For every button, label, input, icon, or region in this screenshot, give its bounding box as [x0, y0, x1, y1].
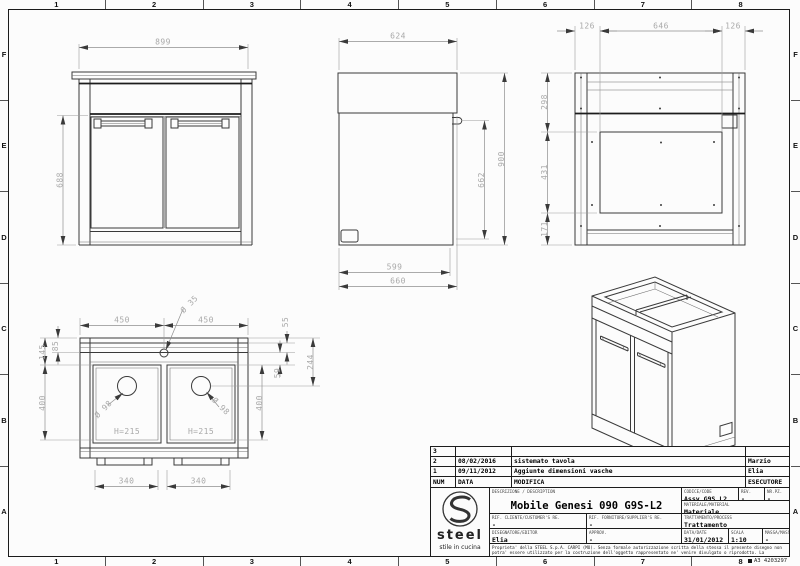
dim-plan-244: 244: [306, 354, 315, 370]
side-extension-lines: [339, 38, 508, 290]
code-cell: CODICE/CODE Assy G9S L2: [681, 487, 739, 501]
plan-feet: [97, 458, 229, 465]
dim-plan-55: 55: [281, 317, 290, 327]
approval-cell: APPROV. -: [586, 528, 682, 544]
date-cell: DATA/DATE 31/01/2012: [681, 528, 729, 544]
dim-plan-feet-right: 340: [191, 477, 207, 486]
rear-back-panel: [600, 132, 722, 213]
dim-rear-mid: 431: [540, 164, 549, 180]
rear-screw-dots: [580, 77, 740, 228]
brand-tagline: stile in cucina: [439, 544, 480, 551]
front-doors: [91, 117, 239, 228]
brand-name: steel: [437, 528, 483, 543]
qty-cell: NR.PZ. -: [764, 487, 790, 501]
dim-plan-right-depth: 400: [255, 395, 264, 411]
dim-rear-bottom: 171: [540, 221, 549, 237]
customer-ref-cell: RIF. CLIENTE/CUSTOMER'S RE. -: [489, 513, 587, 529]
dim-plan-feet-left: 340: [119, 477, 135, 486]
dim-side-top-depth: 624: [390, 32, 406, 41]
logo-cell: steel stile in cucina: [430, 487, 490, 557]
basin-left-depth-label: H=215: [114, 427, 140, 436]
dim-drain-left: Ø 98: [92, 398, 114, 420]
dim-front-width: 899: [155, 38, 171, 47]
process-cell: TRATTAMENTO/PROCESS Trattamento: [681, 513, 790, 529]
isometric-view: [592, 277, 735, 464]
rear-view: 126 646 126 298 431 171: [540, 22, 763, 246]
dim-side-inner-depth: 599: [387, 263, 403, 272]
dim-rear-right-offset: 126: [725, 22, 741, 31]
disclaimer-cell: Proprieta' della STEEL S.p.A. CARPI (MO)…: [489, 543, 790, 557]
description-cell: DESCRIZIONE / DESCRIPTION Mobile Genesi …: [489, 487, 682, 514]
rear-junction-box: [722, 115, 737, 128]
steel-logo: steel stile in cucina: [431, 488, 489, 551]
sheet-format-code: A3 4203297: [748, 558, 787, 564]
drain-left: [118, 377, 137, 396]
scale-cell: SCALA 1:10: [728, 528, 763, 544]
side-top-block: [338, 73, 457, 113]
side-view: 624 662 900 599 660: [338, 32, 508, 291]
dim-plan-right-width: 450: [198, 316, 214, 325]
copyright-disclaimer: Proprieta' della STEEL S.p.A. CARPI (MO)…: [490, 544, 789, 557]
drawing-sheet: 1 2 3 4 5 6 7 8 1 2 3 4 5 6 7 8 F E D C …: [0, 0, 800, 566]
iso-front-lines: [592, 306, 672, 450]
dim-tap-hole: Ø 35: [178, 293, 200, 315]
front-extension-lines: [57, 44, 248, 245]
drawing-title: Mobile Genesi 090 G9S-L2: [490, 494, 681, 512]
dim-plan-85: 85: [51, 341, 60, 351]
rear-panel-lines: [581, 73, 739, 245]
mass-label: MASSA/MASS kg: [763, 529, 789, 535]
dim-plan-145: 145: [38, 344, 47, 360]
front-view: 899 688: [56, 38, 257, 246]
door-handle-right: [171, 119, 229, 128]
iso-rim-depth: [608, 282, 718, 317]
dim-side-total-depth: 660: [390, 277, 406, 286]
steel-logo-mark: [432, 488, 488, 530]
projection-symbol-icon: [748, 559, 752, 563]
rear-extension-lines: [541, 26, 745, 245]
door-handle-left: [94, 119, 152, 128]
rev-cell: REV. -: [738, 487, 765, 501]
material-cell: MATERIALE/MATERIAL Materiale: [681, 500, 790, 514]
dim-drain-right: Ø 98: [210, 395, 232, 417]
drain-right: [192, 377, 211, 396]
dim-plan-left-depth: 400: [38, 395, 47, 411]
format-code-text: A3 4203297: [754, 558, 787, 564]
dim-front-height: 688: [56, 172, 65, 188]
side-foot: [341, 230, 358, 242]
dim-side-total-height: 900: [497, 151, 506, 167]
iso-foot: [720, 422, 732, 436]
dim-side-inner-height: 662: [477, 172, 486, 188]
dim-plan-59: 59: [273, 368, 282, 378]
dim-rear-left-offset: 126: [579, 22, 595, 31]
dim-rear-back-width: 646: [653, 22, 669, 31]
mass-cell: MASSA/MASS kg -: [762, 528, 790, 544]
dim-plan-left-width: 450: [114, 316, 130, 325]
basin-right-depth-label: H=215: [188, 427, 214, 436]
iso-top-edges: [592, 296, 735, 464]
iso-divider: [636, 295, 691, 315]
plan-extension-lines: [40, 318, 320, 490]
drafter-cell: DISEGNATORE/EDITOR Elia: [489, 528, 587, 544]
supplier-ref-cell: RIF. FORNITORE/SUPPLIER'S RE. -: [586, 513, 682, 529]
plan-rail-lines: [80, 348, 248, 452]
plan-view: 450 450 Ø 35 145 85 400 55 59 244 400 Ø …: [38, 293, 320, 490]
title-block: 3 2 08/02/2016 sistemato tavola Marzio 1…: [430, 446, 790, 557]
dim-rear-top: 298: [540, 94, 549, 110]
side-body: [339, 113, 453, 245]
front-rails: [79, 84, 252, 115]
